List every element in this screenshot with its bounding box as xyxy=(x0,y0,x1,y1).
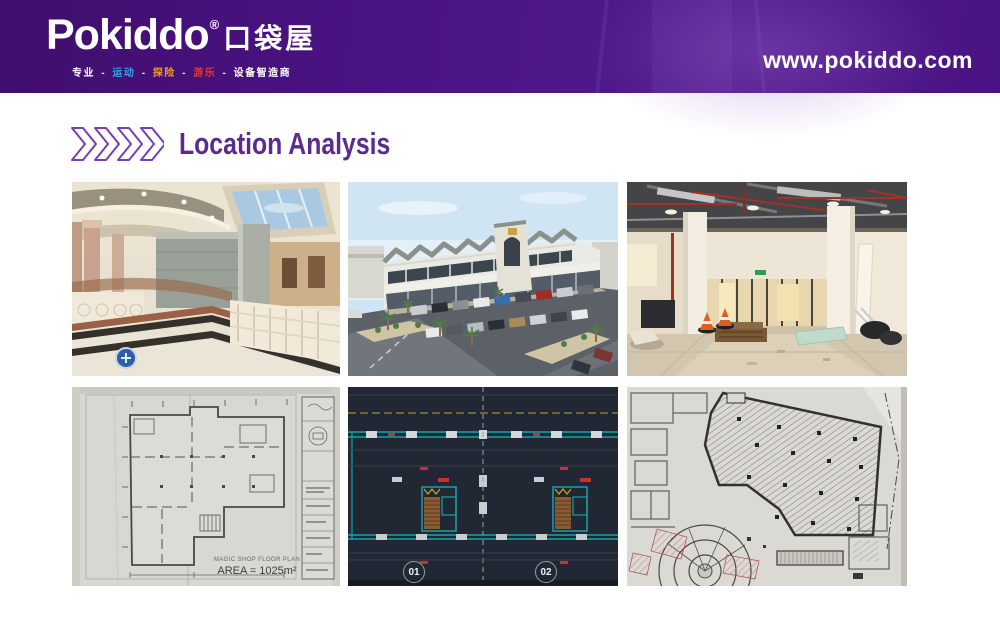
building-exterior-render xyxy=(348,182,618,376)
header-background-art xyxy=(652,0,732,93)
section-title-bar: Location Analysis xyxy=(70,123,443,165)
pokiddo-logo: Pokiddo ® 口袋屋 xyxy=(46,12,316,58)
cad-unit-bubble-02: 02 xyxy=(535,561,557,583)
tagline-segment: 专业 xyxy=(72,68,95,79)
construction-interior-illustration xyxy=(627,182,907,376)
brand-tagline: 专业 - 运动 - 探险 - 游乐 - 设备智造商 xyxy=(72,64,291,79)
hatched-plan-illustration xyxy=(627,387,907,586)
mall-interior-illustration xyxy=(72,182,340,376)
cad-floor-plan: 01 02 xyxy=(348,387,618,586)
logo-cjk-text: 口袋屋 xyxy=(223,20,316,58)
tagline-segment: 运动 xyxy=(112,68,135,79)
cad-unit-bubble-01: 01 xyxy=(403,561,425,583)
hatched-floor-plan xyxy=(627,387,907,586)
floor-plan-photo: MAGIC SHOP FLOOR PLAN AREA = 1025m² xyxy=(72,387,340,586)
construction-interior-photo xyxy=(627,182,907,376)
tagline-dash: - xyxy=(142,68,147,79)
tagline-segment: 游乐 xyxy=(193,68,216,79)
logo-wordmark: Pokiddo xyxy=(46,12,209,58)
tagline-segment: 设备智造商 xyxy=(234,68,292,79)
mall-interior-photo xyxy=(72,182,340,376)
tagline-dash: - xyxy=(223,68,228,79)
website-url: www.pokiddo.com xyxy=(763,47,973,74)
header-bar: Pokiddo ® 口袋屋 专业 - 运动 - 探险 - 游乐 - 设备智造商 … xyxy=(0,0,1000,93)
cad-plan-illustration xyxy=(348,387,618,586)
chevron-right-icons xyxy=(70,125,164,163)
slide: Pokiddo ® 口袋屋 专业 - 运动 - 探险 - 游乐 - 设备智造商 … xyxy=(0,0,1000,638)
page-title: Location Analysis xyxy=(179,126,390,162)
registered-trademark-icon: ® xyxy=(210,17,220,32)
floor-plan-caption-title: MAGIC SHOP FLOOR PLAN xyxy=(202,557,312,563)
tagline-segment: 探险 xyxy=(153,68,176,79)
header-background-art xyxy=(595,0,609,93)
tagline-dash: - xyxy=(182,68,187,79)
tagline-dash: - xyxy=(101,68,106,79)
floor-plan-area-label: AREA = 1025m² xyxy=(198,565,316,577)
building-render-illustration xyxy=(348,182,618,376)
